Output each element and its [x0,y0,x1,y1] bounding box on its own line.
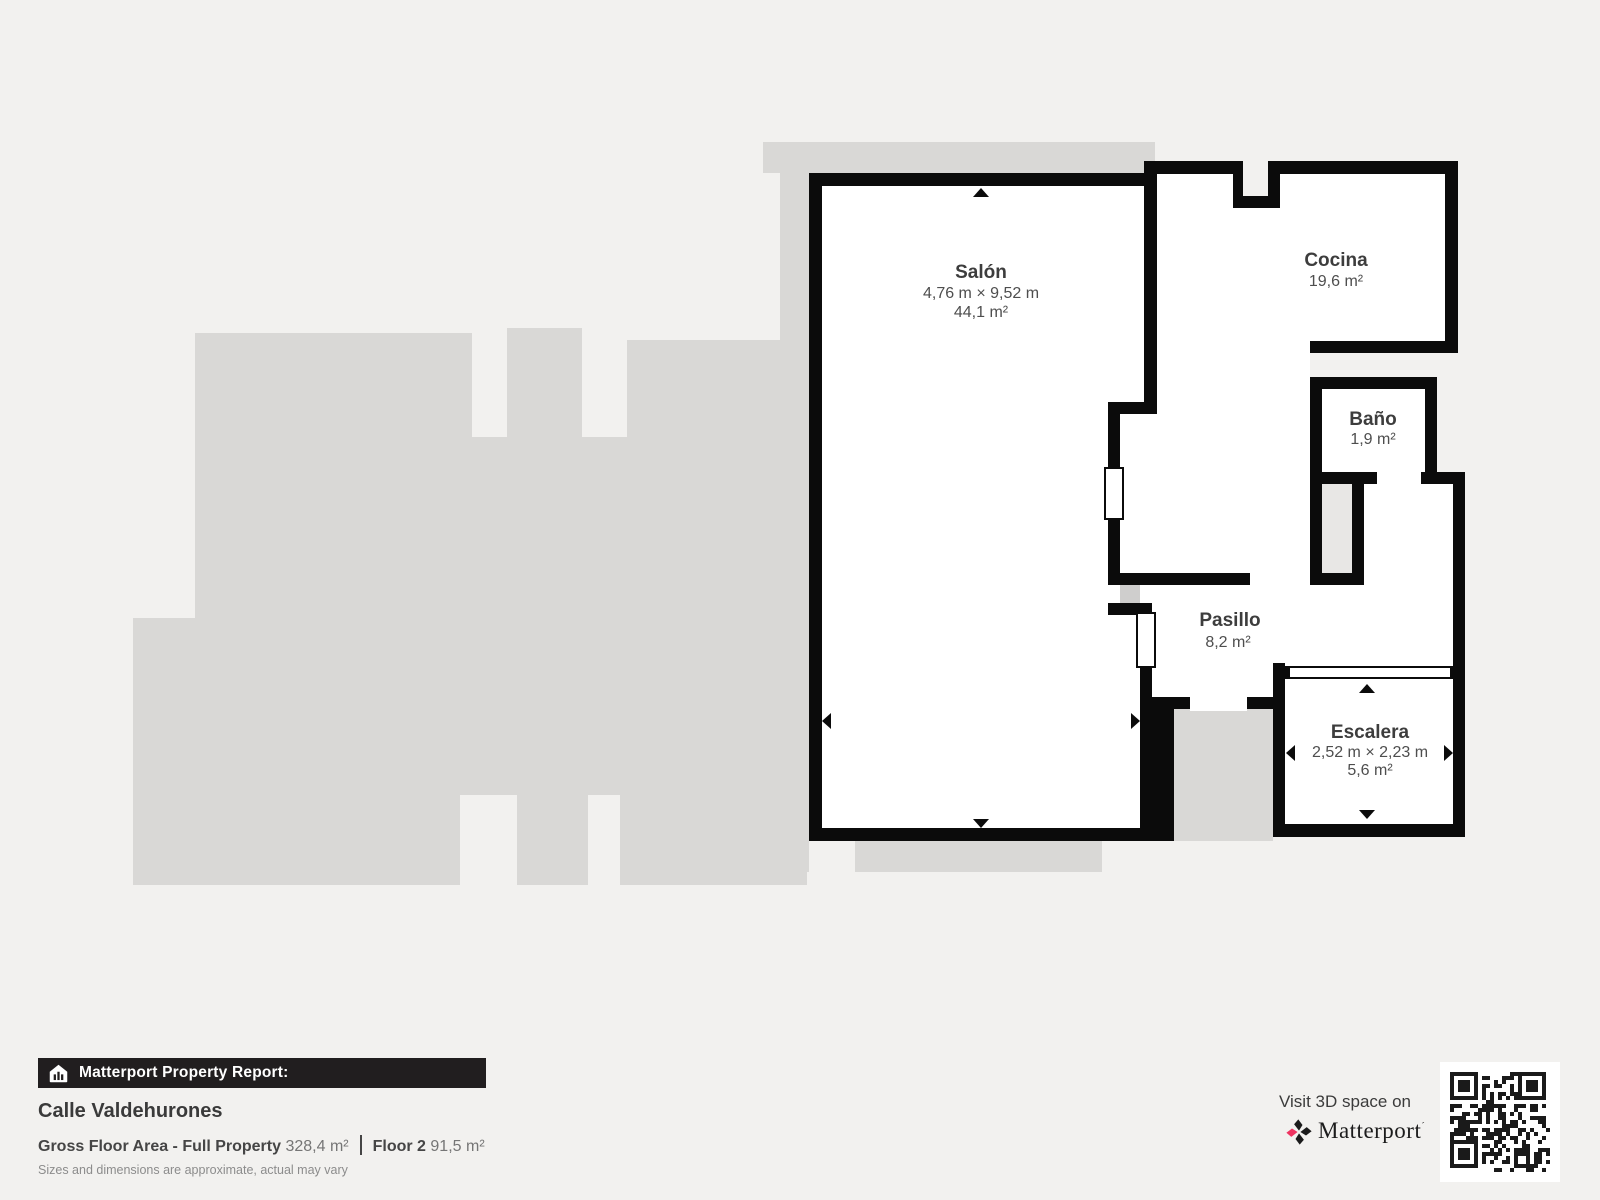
floor-silhouette [460,437,807,795]
wall [1453,472,1465,837]
floor-silhouette [627,340,807,437]
dimension-arrow-left-icon [822,713,831,729]
floorplan-canvas [0,0,1600,1200]
disclaimer-text: Sizes and dimensions are approximate, ac… [38,1163,348,1177]
wall [1273,663,1285,837]
wall [809,173,1157,186]
dimension-arrow-down-icon [973,819,989,828]
room-dims-salon: 4,76 m × 9,52 m [923,285,1039,303]
room-label-escalera: Escalera [1331,722,1409,744]
dimension-arrow-right-icon [1444,745,1453,761]
report-banner-title: Matterport Property Report: [79,1064,289,1082]
wall [1144,161,1458,174]
floor-silhouette [620,795,807,885]
room-area-cocina: 19,6 m² [1309,273,1363,291]
door-opening [1250,571,1310,587]
area-summary: Gross Floor Area - Full Property 328,4 m… [38,1135,485,1156]
floor-silhouette [855,841,1102,872]
room-label-pasillo: Pasillo [1199,610,1260,632]
floor-label: Floor 2 [373,1138,426,1155]
floor-silhouette [763,142,1155,173]
brand-mark: ´ [1421,1121,1425,1132]
dimension-arrow-down-icon [1359,810,1375,819]
floor-silhouette [507,328,582,437]
wall [809,173,822,841]
room-interior [1108,353,1310,585]
room-area-pasillo: 8,2 m² [1205,634,1250,652]
dimension-arrow-up-icon [973,188,989,197]
floor-silhouette [195,333,472,618]
matterport-wordmark: Matterport´ [1318,1118,1425,1144]
floor-silhouette [517,795,588,885]
door-opening [1377,470,1421,486]
visit-3d-space-text: Visit 3D space on [1279,1092,1411,1112]
window-marker [1104,467,1124,520]
room-interior [1144,161,1458,353]
room-dims-escalera: 2,52 m × 2,23 m [1312,744,1428,762]
dimension-arrow-up-icon [1359,684,1375,693]
room-label-bano: Baño [1349,409,1397,431]
wall-notch [1243,150,1268,196]
qr-code [1440,1062,1560,1182]
dimension-arrow-left-icon [1286,745,1295,761]
gross-floor-area-label: Gross Floor Area - Full Property [38,1138,281,1155]
floor-silhouette [133,618,460,885]
wall [1310,377,1437,389]
wall [1140,697,1174,841]
wall [1445,161,1458,353]
floor-area-value: 91,5 m² [430,1138,484,1155]
dimension-arrow-right-icon [1131,713,1140,729]
floor-silhouette [1174,709,1273,841]
wall [1310,341,1458,353]
wall [1108,573,1250,585]
shaft [1322,484,1352,573]
wall [1352,484,1364,573]
wall [809,828,1163,841]
matterport-pinwheel-icon [1284,1118,1314,1146]
report-banner: Matterport Property Report: [38,1058,486,1088]
house-icon [48,1063,69,1084]
gross-floor-area-value: 328,4 m² [285,1138,348,1155]
room-label-salon: Salón [955,262,1007,284]
wall [1425,377,1437,484]
room-area-escalera: 5,6 m² [1347,762,1392,780]
door-marker [1136,612,1156,668]
matterport-floorplan-report: { "rooms": [ {"name": "Salón", "dims": "… [0,0,1600,1200]
property-name: Calle Valdehurones [38,1100,223,1123]
room-area-bano: 1,9 m² [1350,431,1395,449]
wall [1144,161,1157,414]
door-opening [1290,668,1450,677]
qr-code-tile [1440,1062,1560,1182]
room-label-cocina: Cocina [1304,250,1367,272]
separator [360,1135,362,1155]
wall [1233,196,1280,208]
wall [1273,824,1465,837]
door-opening [1190,695,1247,711]
room-area-salon: 44,1 m² [954,304,1008,322]
shaft [1120,585,1140,603]
